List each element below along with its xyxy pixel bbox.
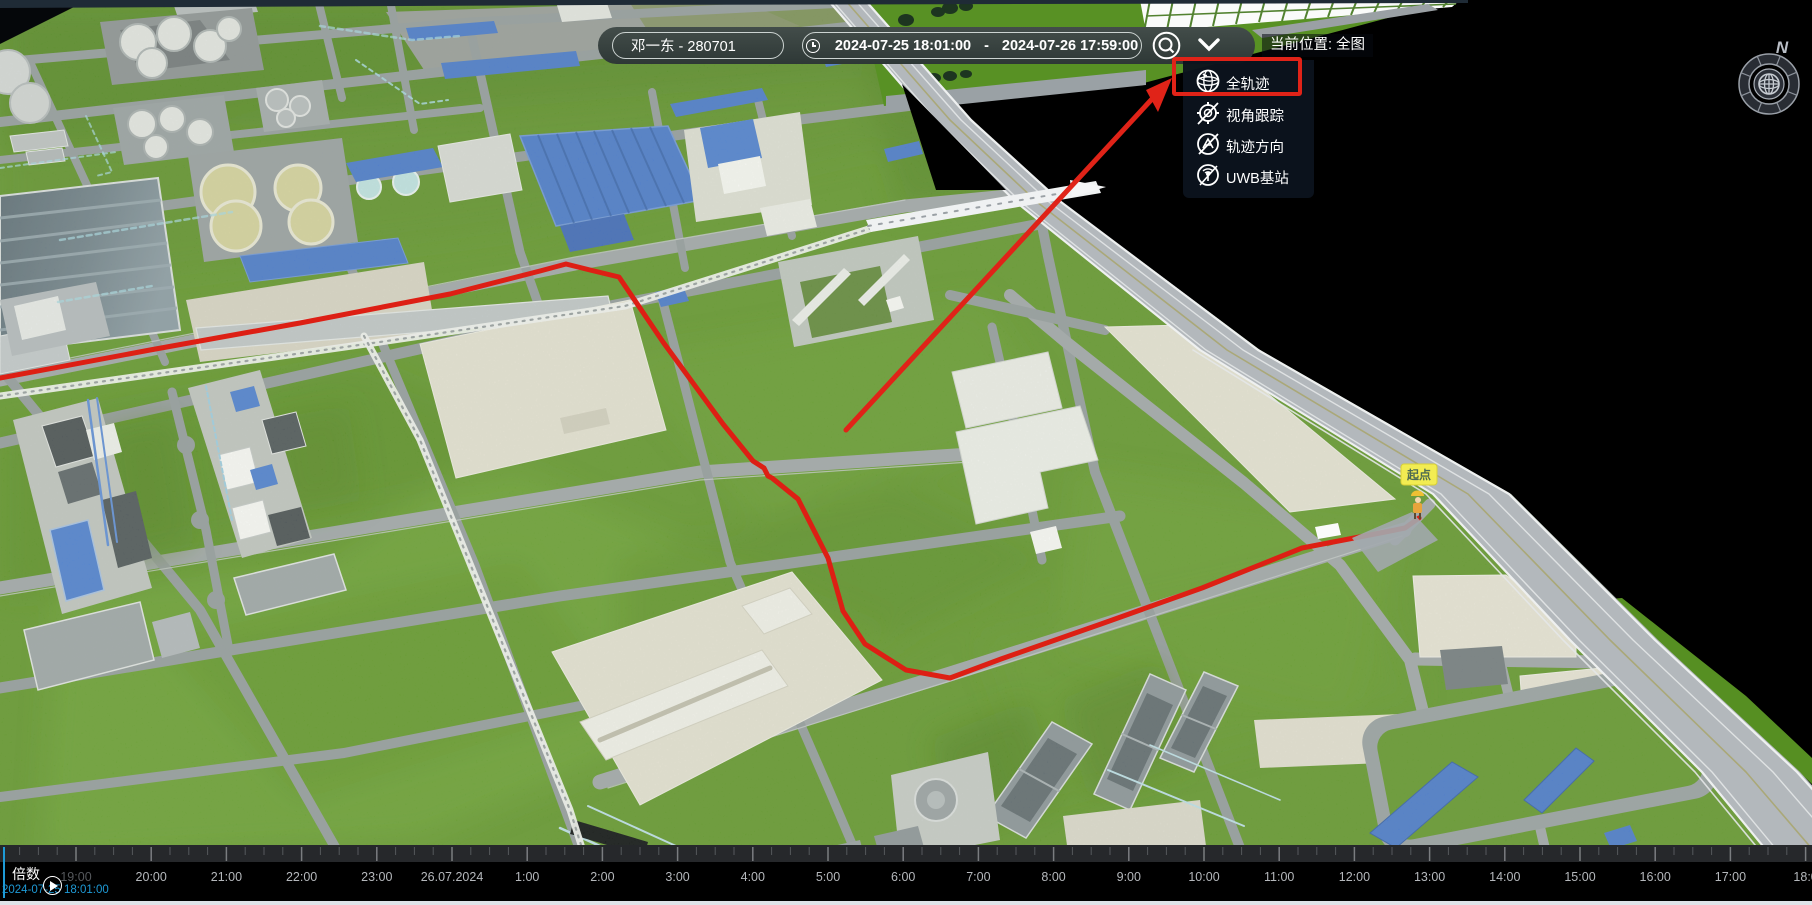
svg-text:8:00: 8:00 [1041,870,1065,884]
svg-text:7:00: 7:00 [966,870,990,884]
svg-text:18:0: 18:0 [1793,870,1812,884]
svg-text:19:00: 19:00 [60,870,91,884]
svg-text:15:00: 15:00 [1564,870,1595,884]
svg-text:9:00: 9:00 [1117,870,1141,884]
svg-text:20:00: 20:00 [136,870,167,884]
svg-text:起点: 起点 [1406,467,1431,482]
svg-text:22:00: 22:00 [286,870,317,884]
svg-text:10:00: 10:00 [1188,870,1219,884]
svg-text:5:00: 5:00 [816,870,840,884]
svg-text:16:00: 16:00 [1640,870,1671,884]
svg-text:1:00: 1:00 [515,870,539,884]
svg-text:6:00: 6:00 [891,870,915,884]
svg-text:11:00: 11:00 [1264,870,1294,884]
svg-text:17:00: 17:00 [1715,870,1746,884]
svg-text:21:00: 21:00 [211,870,242,884]
svg-text:3:00: 3:00 [665,870,689,884]
svg-text:2:00: 2:00 [590,870,614,884]
svg-text:12:00: 12:00 [1339,870,1370,884]
svg-text:23:00: 23:00 [361,870,392,884]
svg-text:14:00: 14:00 [1489,870,1520,884]
svg-text:13:00: 13:00 [1414,870,1445,884]
svg-text:N: N [1776,38,1789,57]
svg-text:26.07.2024: 26.07.2024 [421,870,484,884]
svg-text:4:00: 4:00 [741,870,765,884]
